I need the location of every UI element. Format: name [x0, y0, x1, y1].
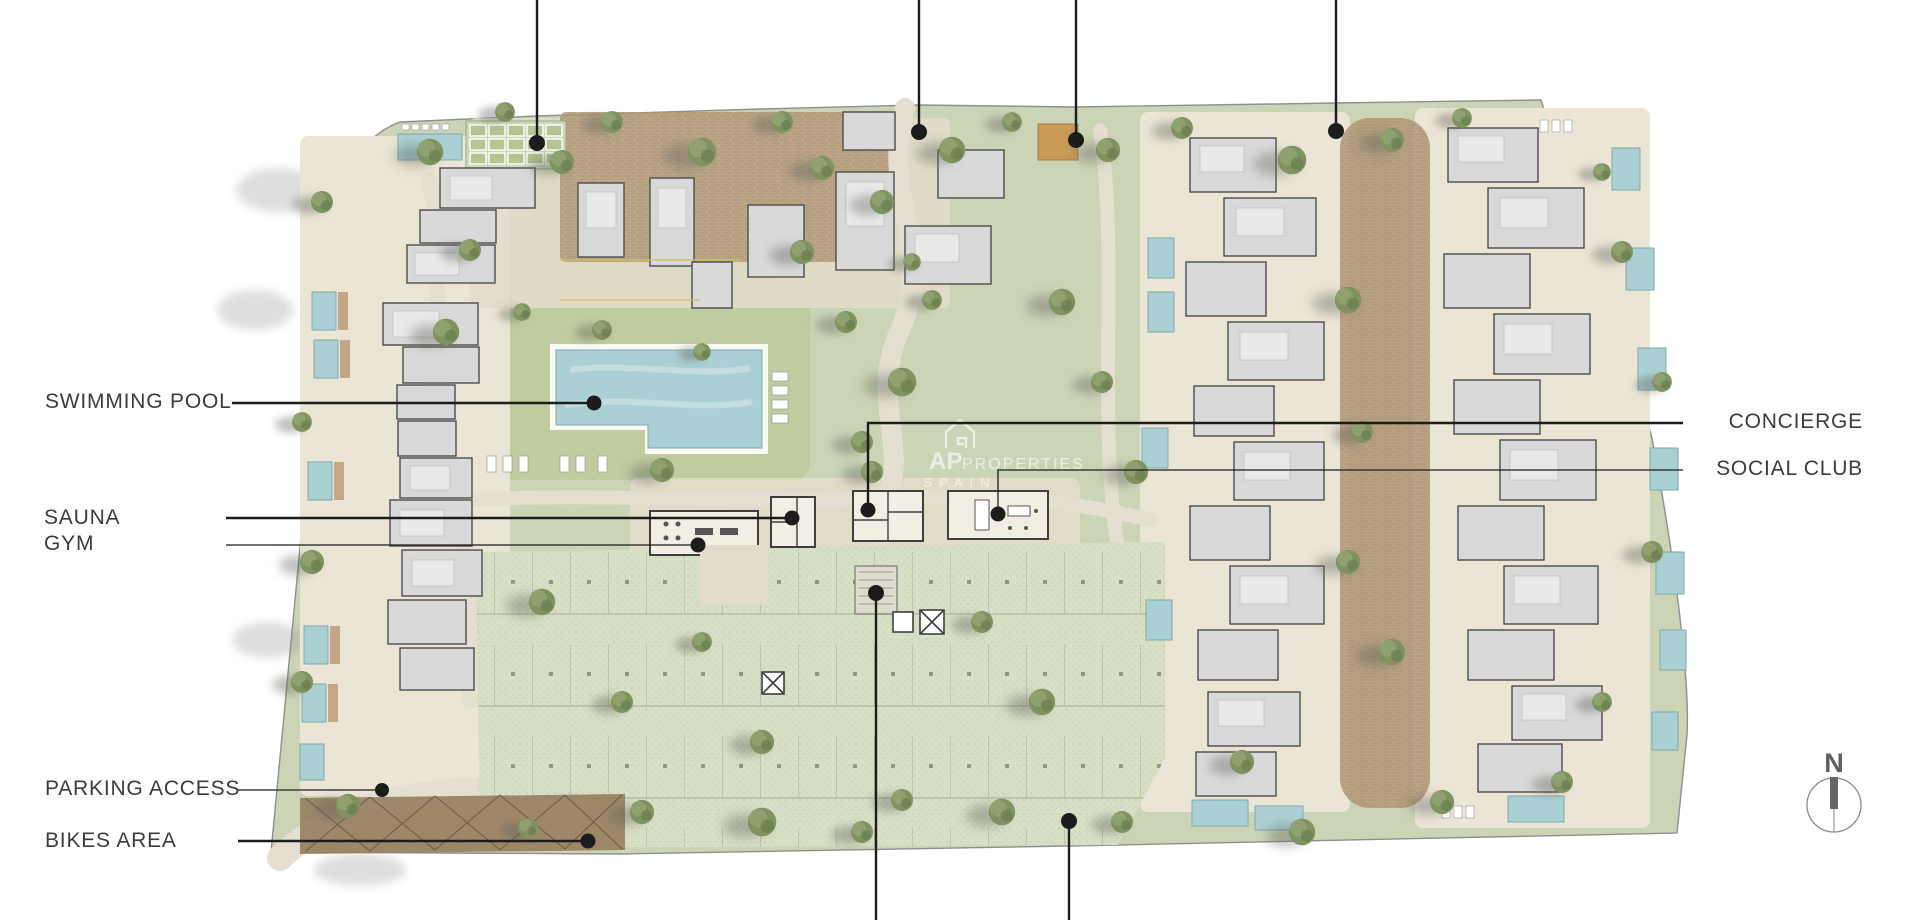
- label-social-club: SOCIAL CLUB: [1716, 456, 1863, 482]
- dot-top-1: [529, 135, 545, 151]
- dot-bottom-1: [868, 585, 884, 601]
- dot-sauna: [785, 511, 800, 526]
- label-concierge: CONCIERGE: [1729, 409, 1863, 435]
- dot-concierge: [861, 503, 876, 518]
- dot-top-4: [1328, 123, 1344, 139]
- dot-bikes-area: [581, 834, 596, 849]
- dot-top-3: [1068, 132, 1084, 148]
- watermark-brand: AP: [929, 448, 962, 475]
- dot-bottom-2: [1061, 813, 1077, 829]
- dot-swimming-pool: [587, 396, 602, 411]
- dot-gym: [691, 538, 706, 553]
- dot-top-2: [911, 124, 927, 140]
- site-plan-page: AP PROPERTIES SPAIN N: [0, 0, 1920, 920]
- dot-parking-access: [375, 783, 389, 797]
- north-label: N: [1824, 748, 1844, 778]
- label-bikes-area: BIKES AREA: [45, 828, 177, 854]
- dot-social-club: [991, 507, 1006, 522]
- label-swimming-pool: SWIMMING POOL: [45, 389, 232, 415]
- label-gym: GYM: [44, 531, 94, 557]
- watermark-tagline: SPAIN: [923, 475, 996, 490]
- north-compass: N: [1807, 748, 1861, 832]
- label-sauna: SAUNA: [44, 505, 120, 531]
- label-parking-access: PARKING ACCESS: [45, 776, 240, 802]
- amenity-court: [700, 545, 768, 605]
- compass-needle-north: [1830, 777, 1838, 809]
- site-plan-image: AP PROPERTIES SPAIN N: [0, 0, 1920, 920]
